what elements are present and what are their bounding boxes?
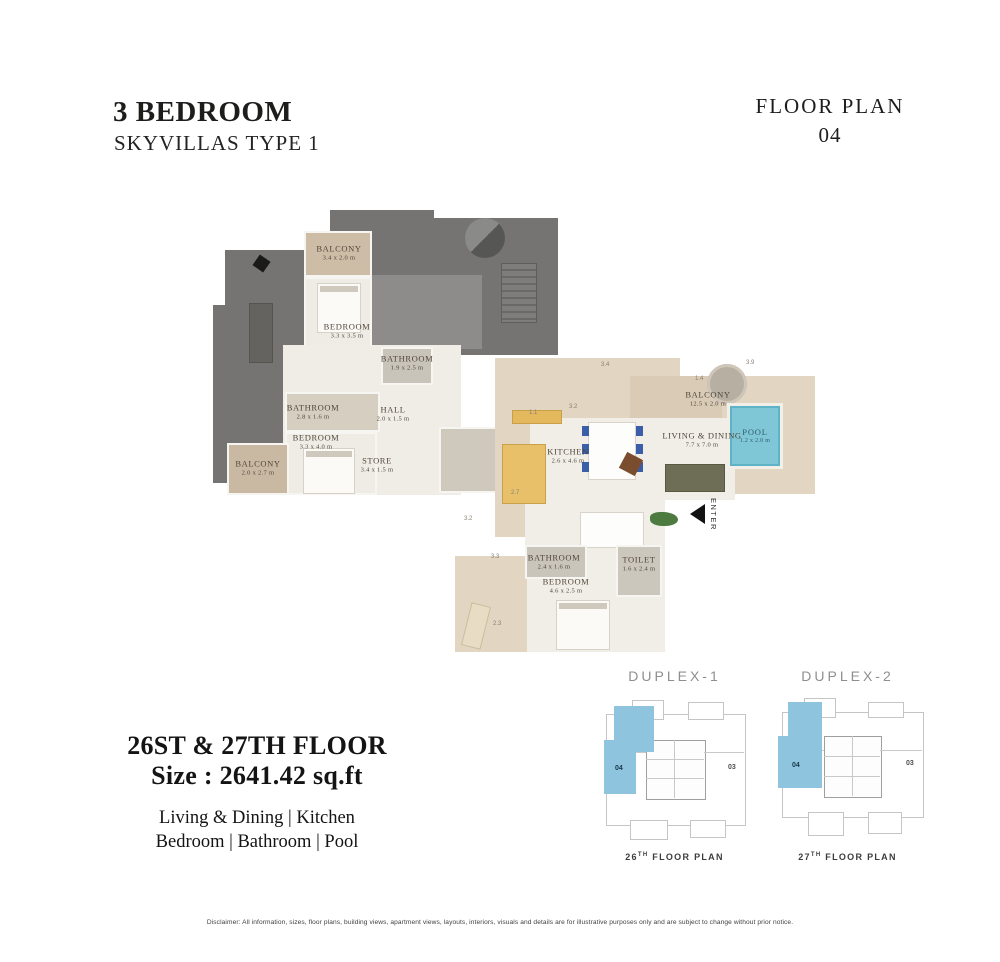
room-label-bedroom-1: BEDROOM 3.3 x 3.5 m <box>324 322 371 341</box>
terrace-table-icon <box>249 303 273 363</box>
pergola-louvre-icon <box>501 263 537 323</box>
bed-icon <box>556 600 610 650</box>
keyplan-outline <box>868 812 902 834</box>
keyplan-caption-27: 27TH FLOOR PLAN <box>770 852 925 862</box>
room-label-living-dining: LIVING & DINING 7.7 x 7.0 m <box>662 431 741 450</box>
edge-dim: 3.9 <box>746 360 754 366</box>
kitchen-counter-icon <box>580 512 644 548</box>
disclaimer-text: Disclaimer: All information, sizes, floo… <box>0 919 1000 926</box>
keyplan-outline <box>808 812 844 836</box>
keyplan-title-duplex-2: DUPLEX-2 <box>770 668 925 684</box>
keyplan-caption-26: 26TH FLOOR PLAN <box>597 852 752 862</box>
keyplan-core <box>646 740 706 800</box>
room-label-bathroom: BATHROOM 2.4 x 1.6 m <box>528 553 581 572</box>
keyplan-outline <box>690 820 726 838</box>
floor-plan-label: FLOOR PLAN <box>740 94 920 119</box>
keyplan-line <box>852 736 853 796</box>
keyplan-line <box>704 752 744 753</box>
keyplan-unit-03: 03 <box>728 764 736 771</box>
sofa-icon <box>665 464 725 492</box>
keyplan-outline <box>688 702 724 720</box>
enter-marker: ENTER <box>690 498 718 531</box>
chair-icon <box>636 426 643 436</box>
features-line-1: Living & Dining | Kitchen <box>102 808 412 829</box>
edge-dim: 1.1 <box>529 410 537 416</box>
keyplan-outline <box>630 820 668 840</box>
edge-dim: 2.7 <box>511 490 519 496</box>
keyplan-outline <box>868 702 904 718</box>
edge-dim: 2.3 <box>493 621 501 627</box>
bed-icon <box>303 448 355 494</box>
floor-plan-number: 04 <box>740 123 920 148</box>
keyplan-duplex-1: 04 03 <box>592 692 758 844</box>
room-label-balcony: BALCONY 3.4 x 2.0 m <box>316 244 361 263</box>
room-label-kitchen: KITCHEN 2.6 x 4.6 m <box>547 447 589 466</box>
dining-table-icon <box>502 444 546 504</box>
roof-lower-slab <box>372 275 482 349</box>
edge-dim: 1.4 <box>695 376 703 382</box>
keyplan-title-duplex-1: DUPLEX-1 <box>597 668 752 684</box>
floor-line: 26ST & 27TH FLOOR <box>102 731 412 761</box>
chair-icon <box>636 444 643 454</box>
floor-plan-page: 3 BEDROOM SKYVILLAS TYPE 1 FLOOR PLAN 04… <box>0 0 1000 962</box>
chair-icon <box>582 426 589 436</box>
enter-label: ENTER <box>709 498 718 531</box>
page-subtitle: SKYVILLAS TYPE 1 <box>114 131 320 156</box>
keyplan-line <box>646 759 704 760</box>
room-label-store: STORE 3.4 x 1.5 m <box>361 456 394 475</box>
room-label-balcony: BALCONY 12.5 x 2.0 m <box>685 390 730 409</box>
page-title: 3 BEDROOM <box>113 96 292 129</box>
keyplan-core <box>824 736 882 798</box>
edge-dim: 3.2 <box>464 516 472 522</box>
edge-dim: 3.2 <box>569 404 577 410</box>
keyplan-unit-03: 03 <box>906 760 914 767</box>
keyplan-unit-04: 04 <box>792 762 800 769</box>
size-line: Size : 2641.42 sq.ft <box>102 761 412 791</box>
lower-floor-plan: POOL 1.2 x 2.0 m ENTER BALCONY 12.5 x 2.… <box>450 352 815 652</box>
room-label-bedroom: BEDROOM 4.6 x 2.5 m <box>543 577 590 596</box>
keyplan-line <box>674 740 675 798</box>
edge-dim: 3.4 <box>601 362 609 368</box>
room-label-bathroom-2: BATHROOM 2.8 x 1.6 m <box>287 403 340 422</box>
edge-dim: 3.3 <box>491 554 499 560</box>
room-label-bedroom-2: BEDROOM 3.3 x 4.0 m <box>293 433 340 452</box>
room-label-hall: HALL 2.0 x 1.5 m <box>377 405 410 424</box>
unit-details: 26ST & 27TH FLOOR Size : 2641.42 sq.ft L… <box>102 731 412 853</box>
roof-spa-icon <box>465 218 505 258</box>
keyplan-unit-highlight <box>778 736 822 788</box>
features-line-2: Bedroom | Bathroom | Pool <box>102 832 412 853</box>
keyplan-duplex-2: 04 03 <box>768 692 934 844</box>
floor-plan-header: FLOOR PLAN 04 <box>740 94 920 148</box>
keyplan-line <box>646 778 704 779</box>
keyplan-unit-04: 04 <box>615 765 623 772</box>
enter-arrow-icon <box>690 504 705 524</box>
keyplan-line <box>880 750 922 751</box>
room-label-balcony-2: BALCONY 2.0 x 2.7 m <box>235 459 280 478</box>
room-label-toilet: TOILET 1.6 x 2.4 m <box>622 555 655 574</box>
plant-icon <box>650 512 678 526</box>
room-label-bathroom-1: BATHROOM 1.9 x 2.5 m <box>381 354 434 373</box>
